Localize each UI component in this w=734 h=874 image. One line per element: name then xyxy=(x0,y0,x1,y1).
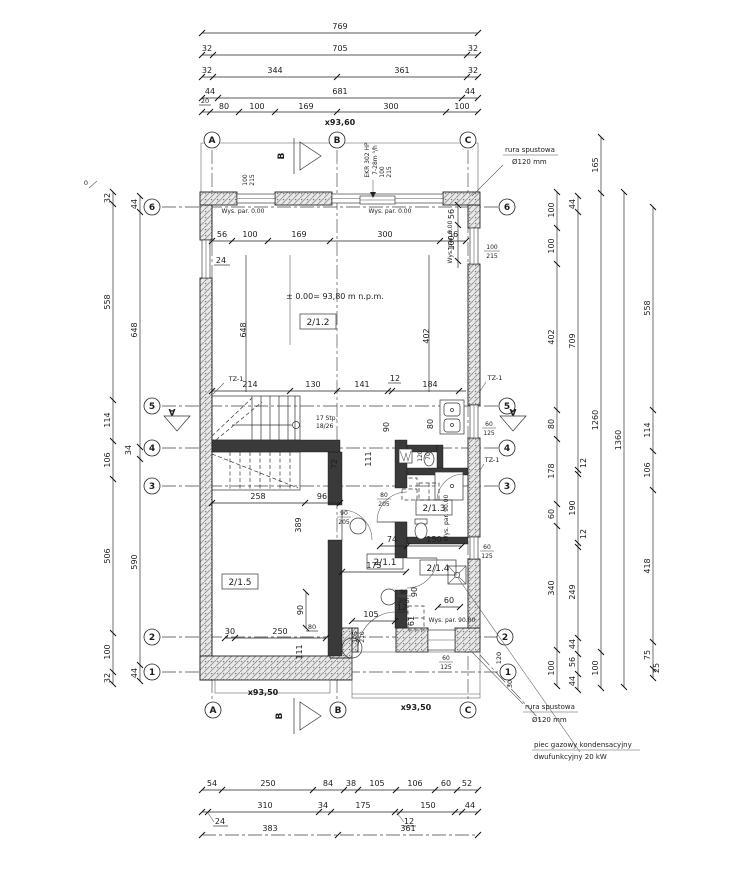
downpipe-note-bottom: rura spustowa xyxy=(525,703,575,711)
dim: 72 xyxy=(330,459,339,469)
dim: 56 xyxy=(447,209,456,219)
window-size: 210 xyxy=(359,631,366,643)
door-size: 80 xyxy=(380,492,388,499)
dim: 111 xyxy=(364,451,373,466)
dim: 169 xyxy=(298,102,313,111)
dim: 250 xyxy=(260,779,275,788)
dim: 105 xyxy=(369,779,384,788)
downpipe-note-top: rura spustowa xyxy=(505,146,555,154)
dim: 56 xyxy=(217,230,227,239)
dim: 100 xyxy=(249,102,264,111)
window-size: 105 xyxy=(352,631,359,643)
sill-label: Wys. par. 90.00 xyxy=(443,494,450,541)
dim: 769 xyxy=(332,22,347,31)
dim: 100 xyxy=(547,202,556,217)
dim: 214 xyxy=(242,380,257,389)
section-letter-a-left: A xyxy=(168,406,175,416)
room-label-2-1-4: 2/1.4 xyxy=(426,564,449,574)
axis-label-b-top: B xyxy=(334,136,341,146)
dim: 100 xyxy=(547,238,556,253)
dim: 34 xyxy=(318,801,328,810)
dim: 80 xyxy=(308,623,316,631)
axis-label-1-left: 1 xyxy=(149,668,155,678)
dim: 111 xyxy=(295,644,304,659)
level-marker-terrace: x93,50 xyxy=(401,703,432,712)
dim: 105 xyxy=(363,610,378,619)
dim: 84 xyxy=(323,779,333,788)
dim: 80 xyxy=(219,102,229,111)
dim: 100 xyxy=(454,102,469,111)
dim: 169 xyxy=(291,230,306,239)
dim: 30 xyxy=(225,627,235,636)
dim: 340 xyxy=(547,580,556,595)
dim: 44 xyxy=(130,668,139,678)
door-size: 90 xyxy=(400,589,408,596)
dim: 114 xyxy=(103,412,112,427)
dim: 90 xyxy=(296,605,305,615)
dim: 258 xyxy=(250,492,265,501)
vent-note2: 7-28m ³/h xyxy=(372,145,379,175)
axis-label-2-left: 2 xyxy=(149,633,155,643)
floor-plan-drawing: A B C A B C 6 5 4 3 2 1 6 5 4 3 2 1 xyxy=(0,0,734,870)
window-size: 60 xyxy=(485,421,493,428)
axis-label-b-bottom: B xyxy=(335,706,342,716)
dim: 383 xyxy=(262,824,277,833)
door-size: 70 xyxy=(425,452,432,460)
dim: 361 xyxy=(400,824,415,833)
dim: 74 xyxy=(387,535,397,544)
stairs-note: 17 Stp. xyxy=(316,415,338,422)
axis-label-1-right: 1 xyxy=(505,668,511,678)
dim: 34 xyxy=(124,445,133,455)
beam-label: TZ-1 xyxy=(484,456,500,464)
dim-chain-left: 32 558 114 106 506 100 32 44 648 34 590 … xyxy=(84,179,143,687)
dim-chain-right: 100 100 402 80 178 60 340 100 44 709 12 … xyxy=(547,134,661,693)
dim: 150 xyxy=(420,801,435,810)
dim: 1360 xyxy=(614,430,623,450)
downpipe-size-top: Ø120 mm xyxy=(512,158,547,166)
dim: 100 xyxy=(242,230,257,239)
dim: 100 xyxy=(103,644,112,659)
dim-chain-top: 769 32 705 32 32 344 361 32 44 681 44 20… xyxy=(199,22,481,127)
room-label-2-1-2: 2/1.2 xyxy=(306,318,329,328)
dim: 52 xyxy=(462,779,472,788)
section-letter-b-top: B xyxy=(277,152,287,159)
dim: 648 xyxy=(130,322,139,337)
dim: 165 xyxy=(591,157,600,172)
sill-label: Wys. par. 0.00 xyxy=(222,208,265,215)
dim: 44 xyxy=(568,639,577,649)
dim: 310 xyxy=(257,801,272,810)
door-size: 90 xyxy=(340,510,348,517)
dim: 60 xyxy=(444,596,454,605)
dim: 681 xyxy=(332,87,347,96)
room-label-2-1-5: 2/1.5 xyxy=(228,578,251,588)
door-size: 205 xyxy=(378,501,390,508)
axis-label-6-left: 6 xyxy=(149,203,155,213)
dim: 12 xyxy=(579,529,588,539)
dim: 506 xyxy=(103,548,112,563)
dim: 44 xyxy=(568,676,577,686)
door-size: 120 xyxy=(417,450,424,462)
dim: 100 xyxy=(547,660,556,675)
window-size: 215 xyxy=(386,166,393,178)
dim: 705 xyxy=(332,44,347,53)
sill-label: Wys. par. 0.00 xyxy=(369,208,412,215)
stairs-note: 18/26 xyxy=(316,423,333,430)
dim: 150 xyxy=(426,535,441,544)
axis-label-6-right: 6 xyxy=(504,203,510,213)
dim: 24 xyxy=(215,817,225,826)
dim: 389 xyxy=(294,517,303,532)
dim: 141 xyxy=(354,380,369,389)
dim: 32 xyxy=(202,44,212,53)
dim: 100 xyxy=(591,660,600,675)
dim: 250 xyxy=(272,627,287,636)
dim: 300 xyxy=(377,230,392,239)
boiler-note: piec gazowy kondensacyjny xyxy=(534,741,632,749)
dim-chain-bottom: 54 250 84 38 105 106 60 52 24 310 34 175… xyxy=(199,779,481,838)
dim: 44 xyxy=(205,87,215,96)
wc-pan xyxy=(415,523,427,539)
dim: 44 xyxy=(130,199,139,209)
dim: 20 xyxy=(201,97,209,105)
dim: 54 xyxy=(207,779,217,788)
axis-label-3-right: 3 xyxy=(504,482,510,492)
ducts xyxy=(402,478,439,630)
axis-label-5-right: 5 xyxy=(504,402,510,412)
door-size: 205 xyxy=(338,519,350,526)
dim: 60 xyxy=(547,509,556,519)
section-letter-a-right: A xyxy=(509,406,516,416)
axis-label-c-top: C xyxy=(465,136,472,146)
beam-label: TZ-1 xyxy=(228,375,244,383)
dim: 32 xyxy=(103,193,112,203)
dim: 60 xyxy=(441,779,451,788)
dim: 80 xyxy=(426,419,435,429)
window-size: 100 xyxy=(242,174,249,186)
dim: 1260 xyxy=(591,410,600,430)
window-size: 215 xyxy=(249,174,256,186)
dim: 184 xyxy=(422,380,437,389)
dim: 590 xyxy=(130,554,139,569)
window-size: 60 xyxy=(442,655,450,662)
window-size: 100 xyxy=(486,244,498,251)
floor-level: ± 0.00= 93,80 m n.p.m. xyxy=(286,292,384,301)
dim: 175 xyxy=(355,801,370,810)
dim: 418 xyxy=(643,558,652,573)
beam-label: TZ-1 xyxy=(487,374,503,382)
axis-label-c-bottom: C xyxy=(465,706,472,716)
dim: 38 xyxy=(346,779,356,788)
axis-label-a-top: A xyxy=(209,136,216,146)
vent-note: EKR 302 HP xyxy=(364,142,371,178)
dim: 648 xyxy=(239,322,248,337)
downpipe-size-bottom: Ø120 mm xyxy=(532,716,567,724)
dim: 44 xyxy=(465,87,475,96)
dim: 25 xyxy=(652,663,661,673)
axis-label-3-left: 3 xyxy=(149,482,155,492)
dim: 32 xyxy=(202,66,212,75)
dim: 12 xyxy=(579,458,588,468)
dim: 130 xyxy=(305,380,320,389)
level-marker-top: x93,60 xyxy=(325,118,356,127)
dim: 80 xyxy=(547,419,556,429)
dim: 30 xyxy=(506,680,514,688)
floor-plan-sheet: A B C A B C 6 5 4 3 2 1 6 5 4 3 2 1 xyxy=(0,0,734,870)
dim: 24 xyxy=(216,256,226,265)
dim: 75 xyxy=(643,650,652,660)
dim: 361 xyxy=(394,66,409,75)
dim: 44 xyxy=(568,199,577,209)
axis-label-5-left: 5 xyxy=(149,402,155,412)
dim: 558 xyxy=(643,300,652,315)
dim: 56 xyxy=(568,657,577,667)
dim: 106 xyxy=(643,462,652,477)
dim: 402 xyxy=(547,329,556,344)
dim: 300 xyxy=(383,102,398,111)
dim: 709 xyxy=(568,333,577,348)
door-size: 205 xyxy=(398,598,410,605)
window-size: 60 xyxy=(483,544,491,551)
dim: 558 xyxy=(103,294,112,309)
window-size: 215 xyxy=(486,253,498,260)
dim: 402 xyxy=(422,328,431,343)
dim: 120 xyxy=(495,652,503,664)
window-size: 125 xyxy=(481,553,493,560)
section-letter-b-bottom: B xyxy=(275,712,285,719)
dim: 106 xyxy=(103,452,112,467)
dim: 12 xyxy=(390,374,400,383)
window-size: 125 xyxy=(440,664,452,671)
dim: 90 xyxy=(410,587,419,597)
room-label-2-1-1: 2/1.1 xyxy=(373,558,396,568)
door-swings xyxy=(342,492,437,650)
dim: 178 xyxy=(547,463,556,478)
sill-label: Wys. par. 0.00 xyxy=(447,220,454,263)
dim: 90 xyxy=(382,422,391,432)
dim: 114 xyxy=(643,422,652,437)
window-size: 100 xyxy=(379,166,386,178)
boiler-note2: dwufunkcyjny 20 kW xyxy=(534,753,607,761)
axis-label-4-left: 4 xyxy=(149,444,155,454)
axis-label-a-bottom: A xyxy=(210,706,217,716)
symbol-circle xyxy=(381,589,397,605)
dim: 44 xyxy=(465,801,475,810)
dim: 32 xyxy=(468,66,478,75)
dim: 61 xyxy=(407,616,416,626)
dim: 249 xyxy=(568,584,577,599)
dim: 106 xyxy=(407,779,422,788)
level-marker-bottom-left: x93,50 xyxy=(248,688,279,697)
window-size: 125 xyxy=(483,430,495,437)
level-zero: 0 xyxy=(84,179,88,187)
dim: 96 xyxy=(317,492,327,501)
dim: 344 xyxy=(267,66,282,75)
dim: 32 xyxy=(103,673,112,683)
dim: 190 xyxy=(568,500,577,515)
sill-label: Wys. par. 90.00 xyxy=(429,617,476,624)
dim: 32 xyxy=(468,44,478,53)
symbol-circle xyxy=(350,518,366,534)
axis-label-4-right: 4 xyxy=(504,444,510,454)
